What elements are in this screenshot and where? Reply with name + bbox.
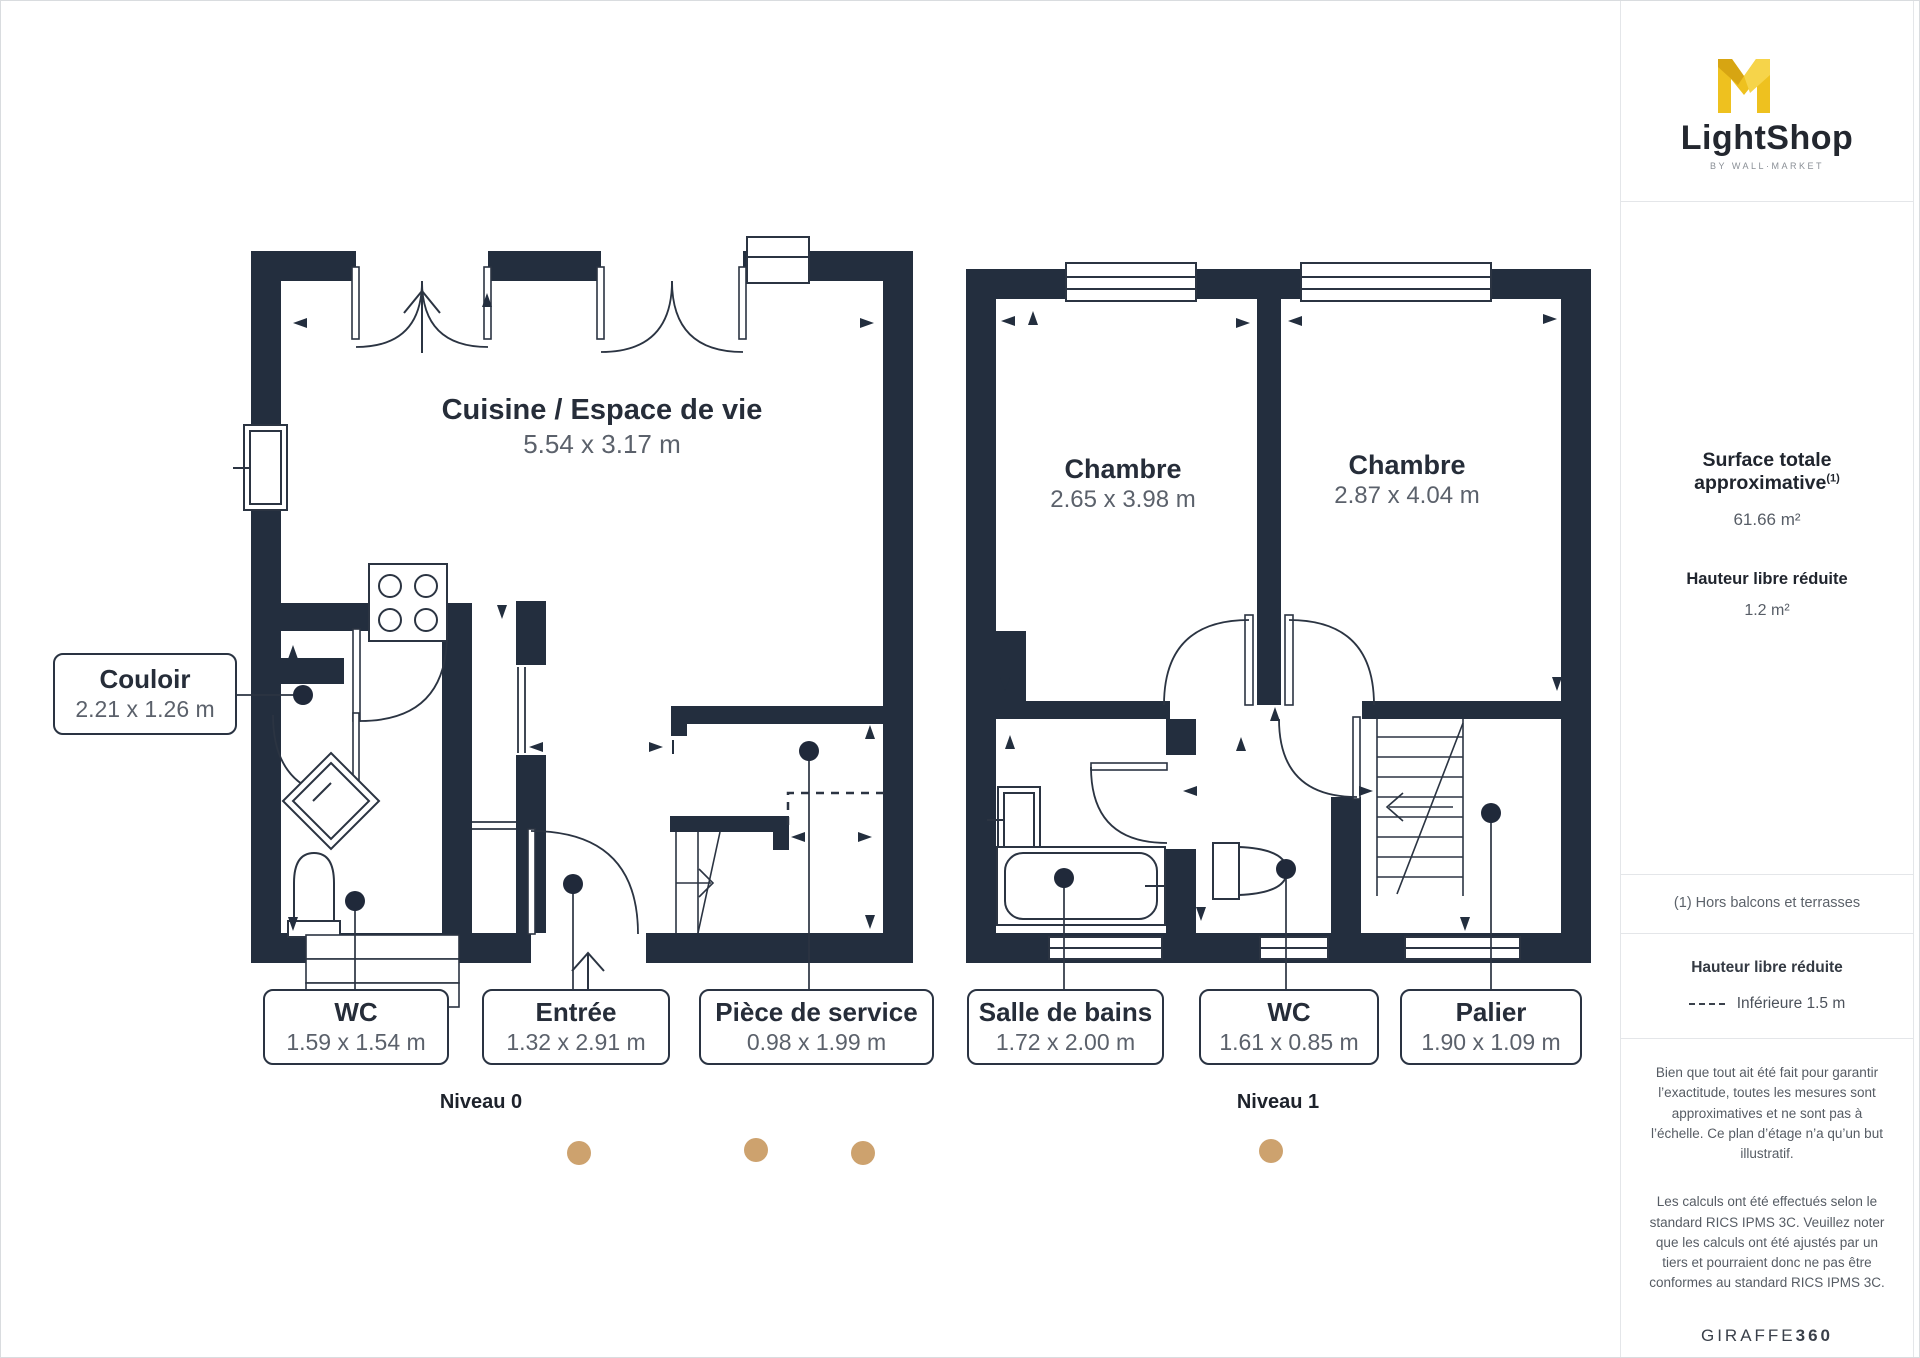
north-arrow bbox=[404, 291, 440, 353]
room-name: WC bbox=[1267, 997, 1310, 1028]
floorplan-drawing bbox=[1, 1, 1920, 1358]
surface-summary: Surface totale approximative(1) 61.66 m²… bbox=[1640, 449, 1894, 620]
sidebar-divider bbox=[1621, 201, 1913, 202]
sidebar-left-border bbox=[1620, 1, 1621, 1358]
room-label-cuisine: Cuisine / Espace de vie 5.54 x 3.17 m bbox=[402, 393, 802, 460]
room-dimensions: 5.54 x 3.17 m bbox=[523, 428, 681, 461]
dashed-line-sample bbox=[1689, 1003, 1725, 1005]
stairs-floor0 bbox=[676, 832, 720, 933]
room-label-box-entree: Entrée 1.32 x 2.91 m bbox=[482, 989, 670, 1065]
room-dimensions: 1.61 x 0.85 m bbox=[1219, 1028, 1358, 1057]
room-name: Chambre bbox=[1348, 449, 1465, 481]
room-name: Salle de bains bbox=[979, 997, 1152, 1028]
room-dimensions: 2.65 x 3.98 m bbox=[1050, 485, 1195, 515]
room-label-chambre-2: Chambre 2.87 x 4.04 m bbox=[1282, 449, 1532, 511]
sidebar-divider bbox=[1621, 933, 1913, 934]
camera-dots[interactable] bbox=[567, 1138, 1283, 1165]
sink-icon bbox=[283, 753, 379, 849]
room-dimensions: 1.59 x 1.54 m bbox=[286, 1028, 425, 1057]
bathtub-icon bbox=[997, 847, 1165, 925]
legend-row: Inférieure 1.5 m bbox=[1640, 995, 1894, 1013]
room-dimensions: 2.21 x 1.26 m bbox=[75, 695, 214, 724]
toilet-icon-floor1 bbox=[1213, 843, 1287, 899]
room-name: Palier bbox=[1456, 997, 1527, 1028]
disclaimer-paragraph-1: Bien que tout ait été fait pour garantir… bbox=[1646, 1063, 1888, 1164]
sidebar-divider bbox=[1621, 1038, 1913, 1039]
surface-total-value: 61.66 m² bbox=[1640, 510, 1894, 530]
room-label-chambre-1: Chambre 2.65 x 3.98 m bbox=[998, 453, 1248, 515]
reduced-height-value: 1.2 m² bbox=[1640, 602, 1894, 620]
lightshop-logo-icon bbox=[1712, 51, 1776, 117]
floorplan-page: Cuisine / Espace de vie 5.54 x 3.17 m Ch… bbox=[0, 0, 1920, 1358]
camera-dot[interactable] bbox=[567, 1141, 591, 1165]
surface-total-title: Surface totale approximative(1) bbox=[1640, 449, 1894, 495]
room-name: WC bbox=[334, 997, 377, 1028]
giraffe360-logo-bold: 360 bbox=[1796, 1326, 1833, 1345]
reduced-height-legend: Hauteur libre réduite Inférieure 1.5 m bbox=[1640, 959, 1894, 1013]
walls-floor0 bbox=[251, 251, 913, 963]
room-label-box-wc-floor1: WC 1.61 x 0.85 m bbox=[1199, 989, 1379, 1065]
reduced-height-dashed-line-floor0 bbox=[788, 793, 885, 825]
room-dimensions: 1.32 x 2.91 m bbox=[506, 1028, 645, 1057]
legend-title: Hauteur libre réduite bbox=[1640, 959, 1894, 977]
sidebar-divider bbox=[1621, 874, 1913, 875]
lightshop-logo-lockup: LightShop BY WALL·MARKET bbox=[1620, 119, 1914, 171]
legend-value: Inférieure 1.5 m bbox=[1737, 995, 1846, 1012]
room-name: Cuisine / Espace de vie bbox=[442, 393, 763, 428]
room-label-box-salle-de-bains: Salle de bains 1.72 x 2.00 m bbox=[967, 989, 1164, 1065]
legal-disclaimer: Bien que tout ait été fait pour garantir… bbox=[1646, 1063, 1888, 1346]
toilet-icon-floor0 bbox=[288, 853, 340, 937]
room-name: Couloir bbox=[100, 664, 191, 695]
reduced-height-title: Hauteur libre réduite bbox=[1640, 570, 1894, 589]
surface-total-title-text: Surface totale approximative bbox=[1694, 449, 1831, 494]
room-dimensions: 1.72 x 2.00 m bbox=[996, 1028, 1135, 1057]
camera-dot[interactable] bbox=[744, 1138, 768, 1162]
floor-name-niveau-1: Niveau 1 bbox=[1178, 1091, 1378, 1114]
room-label-box-wc-floor0: WC 1.59 x 1.54 m bbox=[263, 989, 449, 1065]
logo-tagline: BY WALL·MARKET bbox=[1620, 161, 1914, 171]
room-label-box-piece-de-service: Pièce de service 0.98 x 1.99 m bbox=[699, 989, 934, 1065]
giraffe360-logo: GIRAFFE360 bbox=[1646, 1326, 1888, 1346]
room-dimensions: 0.98 x 1.99 m bbox=[747, 1028, 886, 1057]
stove-icon bbox=[369, 564, 447, 641]
room-dimensions: 2.87 x 4.04 m bbox=[1334, 481, 1479, 511]
camera-dot[interactable] bbox=[851, 1141, 875, 1165]
room-label-box-couloir: Couloir 2.21 x 1.26 m bbox=[53, 653, 237, 735]
disclaimer-paragraph-2: Les calculs ont été effectués selon le s… bbox=[1646, 1192, 1888, 1293]
sidebar-right-border bbox=[1913, 1, 1914, 1358]
logo-text: LightShop bbox=[1620, 119, 1914, 158]
surface-footnote-marker: (1) bbox=[1826, 473, 1839, 485]
entrance-direction-arrow bbox=[572, 953, 604, 991]
stairs-floor1 bbox=[1377, 719, 1463, 896]
room-label-box-palier: Palier 1.90 x 1.09 m bbox=[1400, 989, 1582, 1065]
room-dimensions: 1.90 x 1.09 m bbox=[1421, 1028, 1560, 1057]
room-name: Chambre bbox=[1064, 453, 1181, 485]
camera-dot[interactable] bbox=[1259, 1139, 1283, 1163]
room-name: Pièce de service bbox=[715, 997, 917, 1028]
footnote-hors-balcons: (1) Hors balcons et terrasses bbox=[1640, 895, 1894, 911]
giraffe360-logo-regular: GIRAFFE bbox=[1701, 1326, 1796, 1345]
floor-name-niveau-0: Niveau 0 bbox=[381, 1091, 581, 1114]
room-name: Entrée bbox=[536, 997, 617, 1028]
